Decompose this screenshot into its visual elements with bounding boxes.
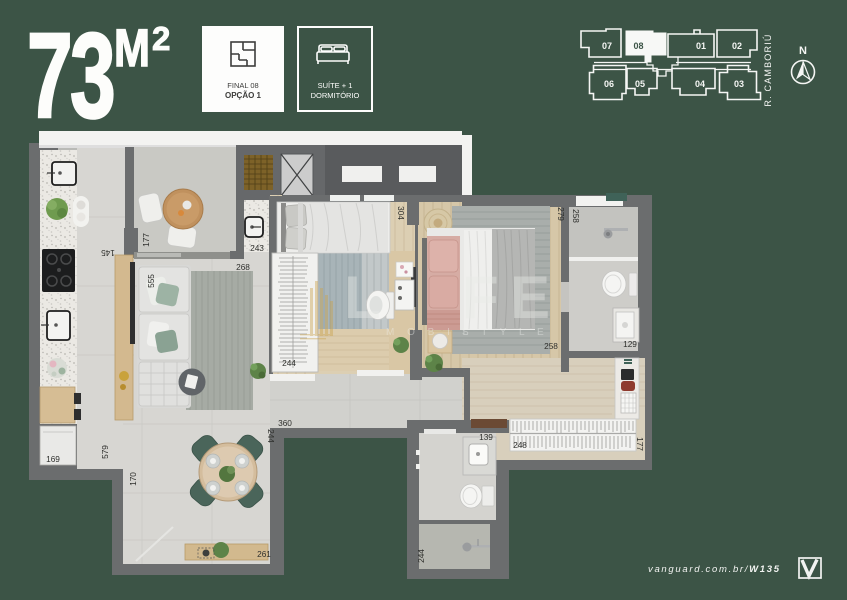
svg-text:FINAL 08: FINAL 08 (227, 81, 258, 90)
svg-text:248: 248 (513, 440, 527, 450)
svg-text:258: 258 (544, 341, 558, 351)
svg-text:L: L (344, 264, 381, 331)
svg-text:M: M (114, 19, 150, 78)
svg-text:139: 139 (479, 432, 493, 442)
svg-text:E: E (510, 264, 550, 331)
svg-text:258: 258 (571, 209, 581, 223)
svg-text:OPÇÃO 1: OPÇÃO 1 (225, 91, 262, 100)
svg-text:170: 170 (128, 472, 138, 486)
svg-text:145: 145 (101, 248, 115, 258)
svg-text:02: 02 (732, 41, 742, 51)
svg-text:F: F (462, 264, 499, 331)
svg-text:01: 01 (696, 41, 706, 51)
svg-text:177: 177 (635, 437, 645, 451)
svg-text:579: 579 (100, 445, 110, 459)
svg-text:SUÍTE + 1: SUÍTE + 1 (318, 81, 353, 90)
svg-text:244: 244 (266, 429, 276, 443)
svg-text:268: 268 (236, 262, 250, 272)
svg-text:244: 244 (416, 549, 426, 563)
svg-text:360: 360 (278, 418, 292, 428)
svg-text:08: 08 (633, 41, 643, 51)
svg-text:07: 07 (602, 41, 612, 51)
svg-text:M O B I L: M O B I L (386, 327, 473, 338)
svg-text:vanguard.com.br/W135: vanguard.com.br/W135 (648, 564, 781, 575)
svg-text:555: 555 (146, 274, 156, 288)
svg-text:03: 03 (734, 79, 744, 89)
svg-text:05: 05 (635, 79, 645, 89)
svg-text:244: 244 (282, 358, 296, 368)
svg-text:243: 243 (250, 243, 264, 253)
svg-text:DORMITÓRIO: DORMITÓRIO (311, 91, 360, 100)
svg-text:261: 261 (257, 549, 271, 559)
svg-text:73: 73 (27, 7, 113, 143)
svg-text:06: 06 (604, 79, 614, 89)
svg-text:2: 2 (152, 20, 170, 57)
svg-text:169: 169 (46, 454, 60, 464)
svg-text:279: 279 (556, 207, 566, 221)
svg-text:S T Y L E: S T Y L E (462, 327, 549, 338)
svg-text:304: 304 (396, 206, 406, 220)
svg-text:177: 177 (141, 233, 151, 247)
svg-text:04: 04 (695, 79, 705, 89)
svg-text:N: N (799, 45, 807, 57)
svg-text:R. CAMBORIÚ: R. CAMBORIÚ (763, 33, 773, 106)
svg-text:129: 129 (623, 339, 637, 349)
